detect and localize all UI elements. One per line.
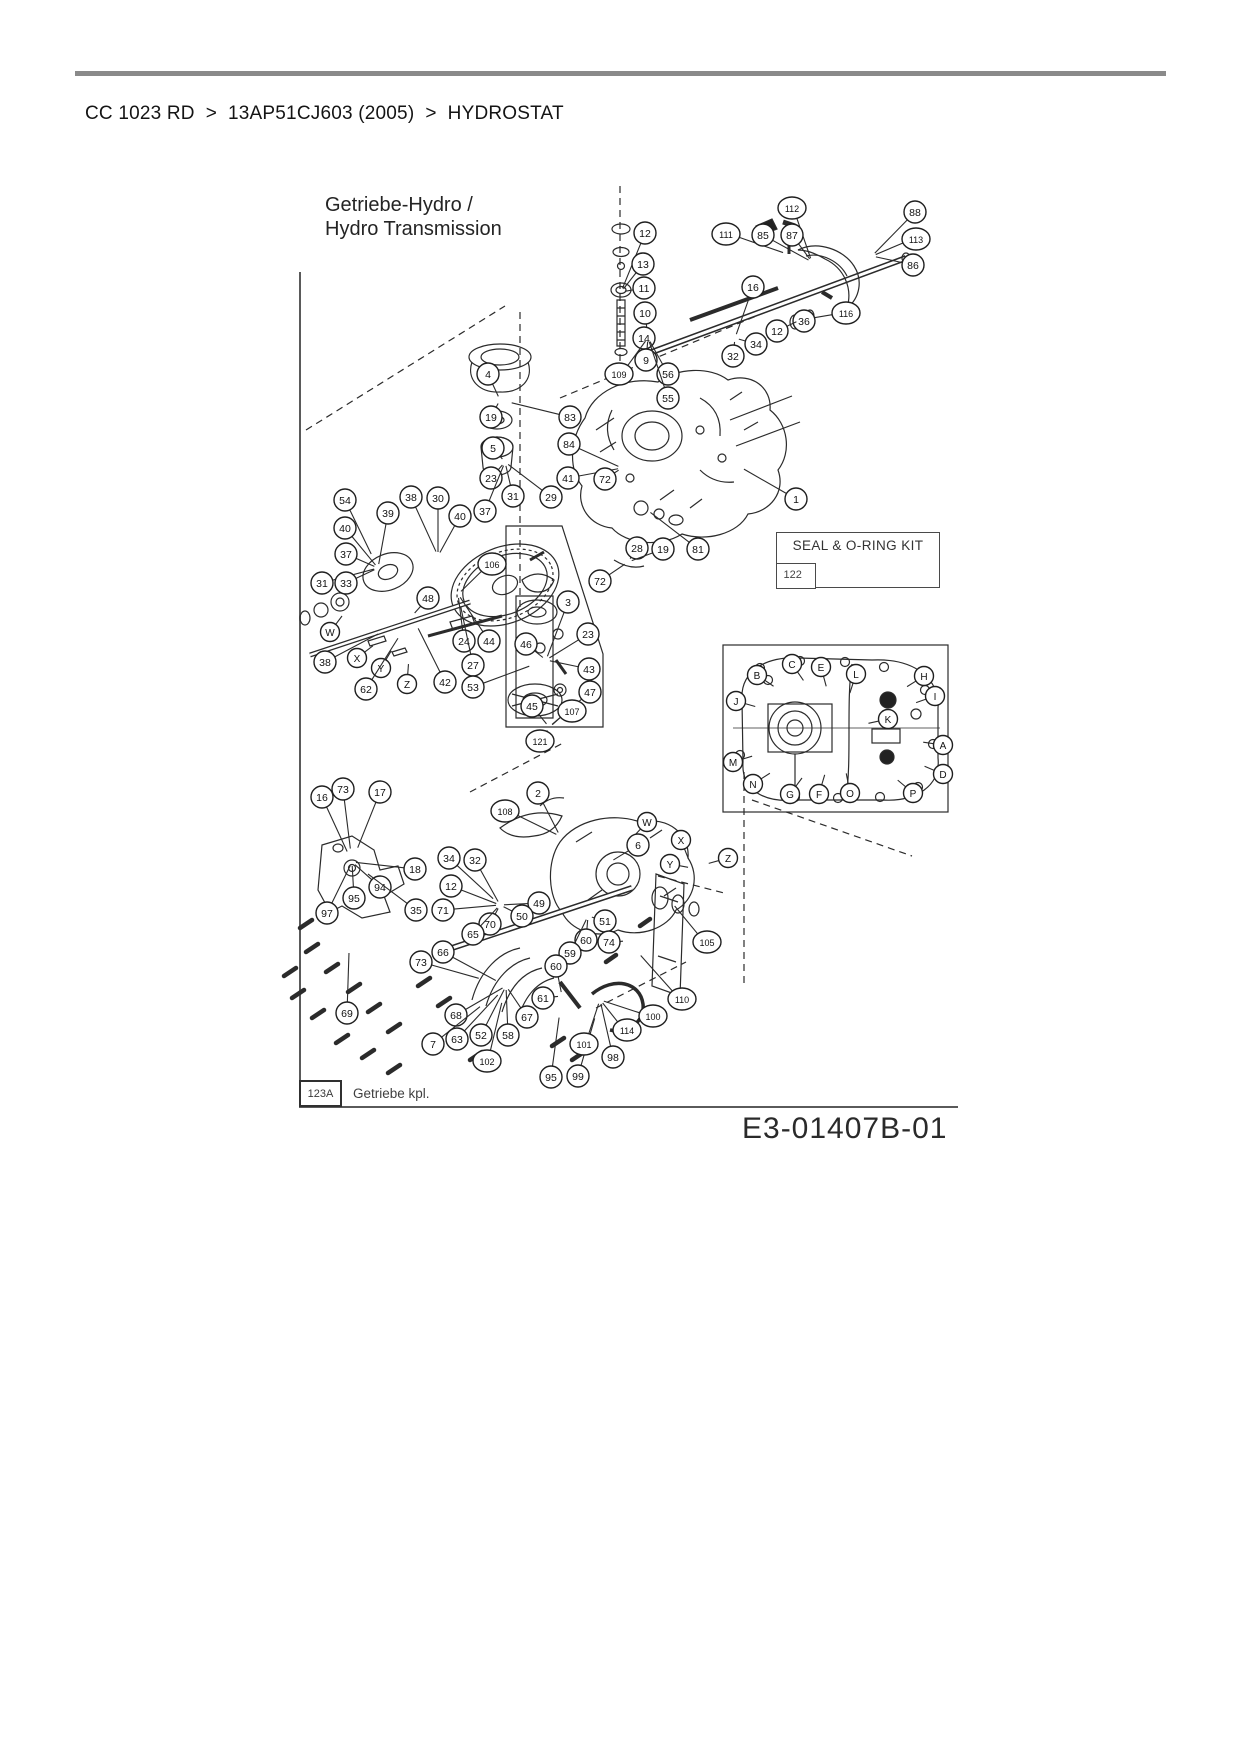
svg-text:7: 7	[430, 1039, 436, 1051]
callout-39: 39	[377, 502, 399, 564]
svg-text:39: 39	[382, 508, 394, 520]
callout-48: 48	[415, 587, 439, 613]
callout-17: 17	[358, 781, 391, 848]
svg-text:60: 60	[580, 935, 592, 947]
svg-text:49: 49	[533, 898, 545, 910]
callout-73: 73	[332, 778, 354, 849]
exploded-drawing: 1213111014956551118511287881138616116361…	[0, 0, 1240, 1754]
svg-text:61: 61	[537, 993, 549, 1005]
callout-18: 18	[356, 858, 426, 880]
svg-text:72: 72	[594, 576, 606, 588]
callout-31: 31	[502, 466, 524, 507]
svg-text:B: B	[754, 671, 761, 682]
svg-text:105: 105	[699, 938, 714, 948]
svg-text:D: D	[939, 770, 946, 781]
svg-text:62: 62	[360, 684, 372, 696]
lower-assembly	[318, 798, 699, 1031]
callout-3: 3	[547, 591, 579, 656]
svg-text:44: 44	[483, 636, 495, 648]
svg-text:65: 65	[467, 929, 479, 941]
svg-text:W: W	[325, 628, 335, 639]
svg-text:I: I	[934, 692, 937, 703]
svg-text:16: 16	[747, 282, 759, 294]
callout-12: 12	[440, 875, 496, 904]
callout-37: 37	[335, 543, 374, 566]
svg-text:116: 116	[839, 309, 853, 319]
svg-text:6: 6	[635, 840, 641, 852]
svg-text:110: 110	[675, 995, 689, 1005]
diagram-title: Getriebe-Hydro / Hydro Transmission	[325, 193, 502, 241]
svg-text:34: 34	[443, 853, 455, 865]
svg-text:51: 51	[599, 916, 611, 928]
svg-text:66: 66	[437, 947, 449, 959]
callout-42: 42	[418, 628, 456, 693]
svg-text:37: 37	[340, 549, 352, 561]
svg-text:101: 101	[576, 1040, 591, 1050]
svg-text:35: 35	[410, 905, 422, 917]
svg-text:27: 27	[467, 660, 479, 672]
svg-text:34: 34	[750, 339, 762, 351]
svg-text:86: 86	[907, 260, 919, 272]
svg-text:63: 63	[451, 1034, 463, 1046]
callout-1: 1	[744, 469, 807, 510]
callout-Y: Y	[661, 855, 689, 874]
callout-A: A	[923, 736, 952, 755]
svg-text:40: 40	[454, 511, 466, 523]
svg-text:108: 108	[497, 807, 512, 817]
svg-text:48: 48	[422, 593, 434, 605]
svg-text:69: 69	[341, 1008, 353, 1020]
svg-text:95: 95	[348, 893, 360, 905]
svg-text:58: 58	[502, 1030, 514, 1042]
callout-50: 50	[504, 905, 533, 927]
footer-ref-box: 123A	[299, 1080, 342, 1107]
svg-text:81: 81	[692, 544, 704, 556]
svg-text:X: X	[354, 654, 361, 665]
svg-text:95: 95	[545, 1072, 557, 1084]
svg-text:84: 84	[563, 439, 575, 451]
callout-51: 51	[592, 910, 616, 932]
callout-40: 40	[440, 505, 471, 552]
callout-W: W	[321, 616, 343, 642]
callout-D: D	[925, 765, 953, 784]
svg-text:H: H	[920, 672, 927, 683]
svg-text:88: 88	[909, 207, 921, 219]
svg-text:12: 12	[445, 881, 457, 893]
svg-text:74: 74	[603, 937, 615, 949]
svg-text:59: 59	[564, 948, 576, 960]
svg-text:98: 98	[607, 1052, 619, 1064]
svg-text:87: 87	[786, 230, 798, 242]
callout-72: 72	[594, 468, 619, 490]
svg-text:113: 113	[909, 235, 923, 245]
svg-text:45: 45	[526, 701, 538, 713]
callout-2: 2	[527, 782, 558, 832]
svg-text:38: 38	[405, 492, 417, 504]
svg-text:19: 19	[485, 412, 497, 424]
svg-text:X: X	[678, 836, 685, 847]
seal-kit-title: SEAL & O-RING KIT	[777, 538, 939, 553]
callout-107: 107	[552, 700, 586, 725]
callout-83: 83	[512, 403, 581, 428]
callout-Z: Z	[709, 849, 738, 868]
callout-101: 101	[570, 1004, 599, 1055]
svg-text:Y: Y	[667, 860, 674, 871]
svg-text:30: 30	[432, 493, 444, 505]
svg-text:9: 9	[643, 355, 649, 367]
svg-text:W: W	[642, 818, 652, 829]
svg-text:1: 1	[793, 494, 799, 506]
svg-text:C: C	[788, 660, 795, 671]
svg-text:114: 114	[620, 1026, 634, 1036]
callout-16: 16	[736, 276, 764, 334]
svg-text:71: 71	[437, 905, 449, 917]
svg-text:J: J	[734, 697, 739, 708]
svg-text:M: M	[729, 758, 737, 769]
svg-text:A: A	[940, 741, 947, 752]
svg-text:52: 52	[475, 1030, 487, 1042]
svg-text:41: 41	[562, 473, 574, 485]
svg-text:23: 23	[485, 473, 497, 485]
svg-text:43: 43	[583, 664, 595, 676]
svg-text:31: 31	[316, 578, 328, 590]
svg-text:E: E	[818, 663, 825, 674]
svg-text:102: 102	[479, 1057, 494, 1067]
callout-113: 113	[876, 228, 930, 255]
svg-text:40: 40	[339, 523, 351, 535]
svg-text:12: 12	[639, 228, 651, 240]
callout-J: J	[727, 692, 756, 711]
svg-text:112: 112	[785, 204, 799, 214]
svg-text:55: 55	[662, 393, 674, 405]
svg-text:73: 73	[337, 784, 349, 796]
svg-text:73: 73	[415, 957, 427, 969]
svg-text:83: 83	[564, 412, 576, 424]
callout-45: 45	[521, 695, 546, 724]
callout-36: 36	[793, 310, 815, 332]
callout-5: 5	[482, 437, 504, 459]
callout-32: 32	[464, 849, 498, 902]
svg-text:P: P	[910, 789, 917, 800]
svg-text:111: 111	[719, 230, 733, 240]
svg-text:N: N	[749, 780, 756, 791]
svg-text:99: 99	[572, 1071, 584, 1083]
callout-11: 11	[625, 277, 655, 299]
svg-text:5: 5	[490, 443, 496, 455]
svg-text:28: 28	[631, 543, 643, 555]
svg-text:Z: Z	[404, 680, 410, 691]
seal-kit-part-number: 122	[776, 563, 816, 589]
svg-text:56: 56	[662, 369, 674, 381]
svg-text:O: O	[846, 789, 854, 800]
callout-E: E	[812, 658, 831, 687]
diagram-title-line1: Getriebe-Hydro /	[325, 193, 502, 217]
callout-121: 121	[526, 730, 554, 752]
svg-text:85: 85	[757, 230, 769, 242]
svg-text:23: 23	[582, 629, 594, 641]
callout-C: C	[783, 655, 804, 681]
svg-text:36: 36	[798, 316, 810, 328]
callout-19: 19	[480, 404, 502, 428]
callout-F: F	[810, 775, 829, 804]
svg-text:109: 109	[611, 370, 626, 380]
callout-Z: Z	[398, 664, 417, 693]
callout-M: M	[724, 753, 753, 772]
svg-text:42: 42	[439, 677, 451, 689]
callout-74: 74	[598, 931, 623, 953]
svg-text:10: 10	[639, 308, 651, 320]
svg-text:19: 19	[657, 544, 669, 556]
svg-text:2: 2	[535, 788, 541, 800]
svg-text:60: 60	[550, 961, 562, 973]
callout-33: 33	[335, 570, 374, 594]
svg-text:121: 121	[532, 737, 547, 747]
top-shaft-stack	[611, 224, 631, 356]
svg-text:38: 38	[319, 657, 331, 669]
svg-text:17: 17	[374, 787, 386, 799]
svg-text:68: 68	[450, 1010, 462, 1022]
drawing-number: E3-01407B-01	[742, 1112, 947, 1146]
svg-text:32: 32	[727, 351, 739, 363]
callout-106: 106	[461, 553, 506, 591]
svg-text:L: L	[853, 670, 859, 681]
diagram-title-line2: Hydro Transmission	[325, 217, 502, 241]
svg-text:G: G	[786, 790, 794, 801]
svg-text:53: 53	[467, 682, 479, 694]
svg-text:18: 18	[409, 864, 421, 876]
svg-text:67: 67	[521, 1012, 533, 1024]
callout-W: W	[633, 813, 656, 837]
callout-N: N	[744, 773, 770, 793]
svg-text:32: 32	[469, 855, 481, 867]
svg-text:46: 46	[520, 639, 532, 651]
svg-text:107: 107	[564, 707, 579, 717]
svg-text:97: 97	[321, 908, 333, 920]
svg-text:47: 47	[584, 687, 596, 699]
svg-text:13: 13	[637, 259, 649, 271]
construction-lines	[306, 186, 912, 1008]
svg-text:31: 31	[507, 491, 519, 503]
svg-text:16: 16	[316, 792, 328, 804]
svg-text:54: 54	[339, 495, 351, 507]
callout-95: 95	[540, 1018, 562, 1088]
svg-text:50: 50	[516, 911, 528, 923]
svg-text:4: 4	[485, 369, 491, 381]
svg-text:12: 12	[771, 326, 783, 338]
svg-text:K: K	[885, 715, 892, 726]
callout-61: 61	[532, 987, 558, 1009]
svg-text:33: 33	[340, 578, 352, 590]
footer-ref-label: Getriebe kpl.	[353, 1086, 430, 1101]
callout-23: 23	[549, 623, 599, 658]
callout-110: 110	[641, 955, 696, 1010]
callout-12: 12	[766, 320, 796, 342]
svg-text:3: 3	[565, 597, 571, 609]
svg-text:29: 29	[545, 492, 557, 504]
callout-X: X	[348, 646, 373, 668]
callout-K: K	[868, 710, 897, 729]
svg-text:106: 106	[484, 560, 499, 570]
callout-72: 72	[589, 564, 625, 592]
svg-text:F: F	[816, 790, 822, 801]
callout-O: O	[841, 773, 860, 802]
svg-text:100: 100	[645, 1012, 660, 1022]
callout-32: 32	[722, 342, 744, 367]
callout-layer: 1213111014956551118511287881138616116361…	[311, 197, 953, 1088]
svg-text:Z: Z	[725, 854, 731, 865]
svg-text:72: 72	[599, 474, 611, 486]
svg-text:37: 37	[479, 506, 491, 518]
callout-H: H	[907, 667, 933, 687]
svg-text:11: 11	[639, 283, 650, 295]
callout-46: 46	[515, 633, 543, 658]
seal-kit-box: SEAL & O-RING KIT 122	[776, 532, 940, 588]
